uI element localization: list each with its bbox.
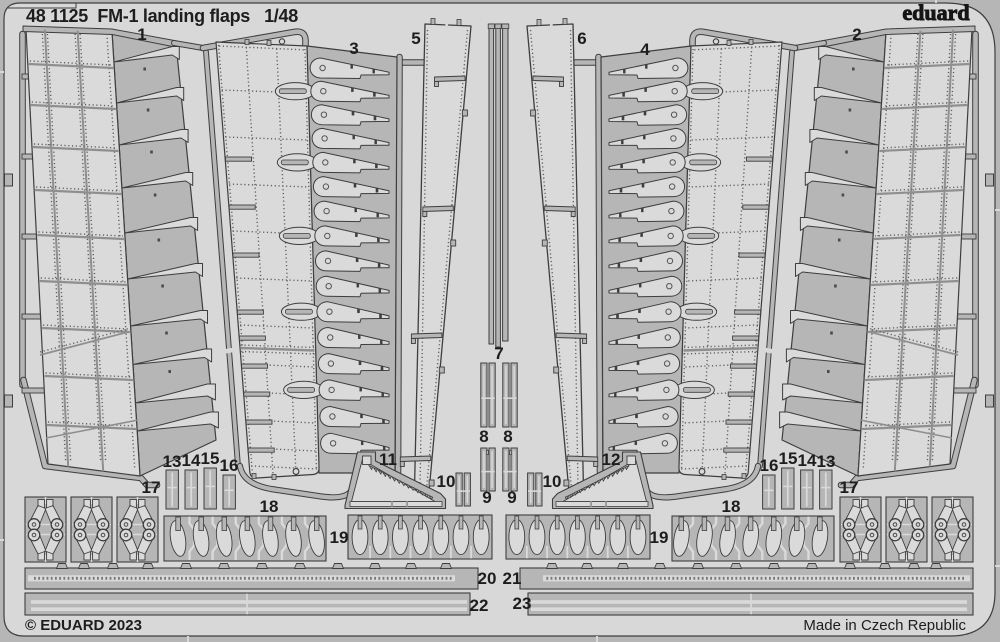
svg-text:23: 23 bbox=[513, 594, 532, 613]
svg-text:14: 14 bbox=[798, 451, 817, 470]
svg-text:3: 3 bbox=[349, 39, 358, 58]
svg-text:10: 10 bbox=[437, 472, 456, 491]
svg-text:© EDUARD 2023: © EDUARD 2023 bbox=[25, 617, 142, 634]
svg-text:18: 18 bbox=[722, 497, 741, 516]
svg-text:8: 8 bbox=[479, 427, 488, 446]
svg-text:15: 15 bbox=[201, 449, 220, 468]
svg-text:8: 8 bbox=[503, 427, 512, 446]
svg-text:16: 16 bbox=[220, 456, 239, 475]
svg-text:7: 7 bbox=[494, 344, 503, 363]
svg-text:22: 22 bbox=[470, 596, 489, 615]
svg-text:14: 14 bbox=[182, 451, 201, 470]
svg-text:9: 9 bbox=[507, 488, 516, 507]
svg-text:11: 11 bbox=[379, 450, 397, 469]
svg-text:4: 4 bbox=[640, 40, 650, 59]
svg-text:6: 6 bbox=[577, 29, 586, 48]
svg-text:15: 15 bbox=[779, 449, 798, 468]
svg-text:13: 13 bbox=[163, 452, 182, 471]
svg-text:2: 2 bbox=[852, 25, 861, 44]
svg-text:17: 17 bbox=[142, 478, 161, 497]
svg-text:1: 1 bbox=[137, 25, 146, 44]
svg-text:19: 19 bbox=[650, 528, 669, 547]
svg-text:16: 16 bbox=[760, 456, 779, 475]
svg-text:12: 12 bbox=[602, 450, 621, 469]
svg-text:19: 19 bbox=[330, 528, 349, 547]
svg-text:eduard: eduard bbox=[902, 0, 969, 25]
svg-text:10: 10 bbox=[543, 472, 562, 491]
svg-text:21: 21 bbox=[503, 569, 522, 588]
svg-text:9: 9 bbox=[482, 488, 491, 507]
svg-text:18: 18 bbox=[260, 497, 279, 516]
svg-text:20: 20 bbox=[478, 569, 497, 588]
svg-text:48 1125 FM-1 landing flaps: 48 1125 FM-1 landing flaps 1/48 bbox=[26, 6, 298, 26]
svg-text:Made in Czech Republic: Made in Czech Republic bbox=[803, 617, 966, 634]
svg-text:5: 5 bbox=[411, 29, 420, 48]
svg-text:13: 13 bbox=[817, 452, 836, 471]
svg-text:17: 17 bbox=[840, 478, 859, 497]
